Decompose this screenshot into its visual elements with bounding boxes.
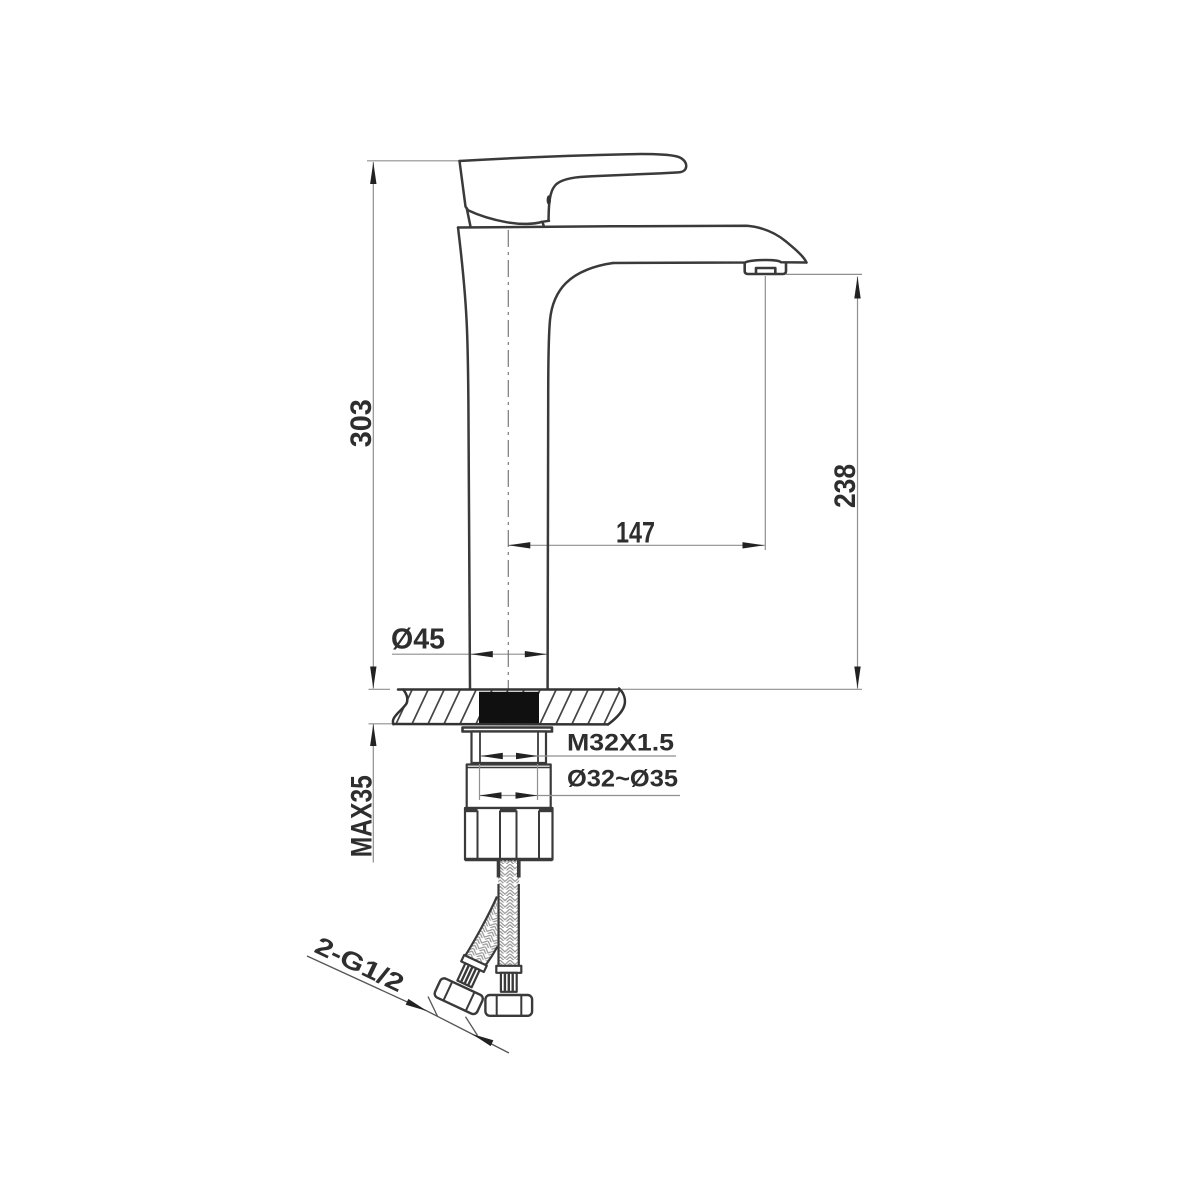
svg-text:Ø32~Ø35: Ø32~Ø35 bbox=[567, 766, 678, 793]
svg-text:238: 238 bbox=[829, 464, 862, 508]
svg-text:MAX35: MAX35 bbox=[346, 775, 379, 857]
svg-text:303: 303 bbox=[345, 399, 378, 447]
svg-text:147: 147 bbox=[616, 517, 655, 550]
svg-text:M32X1.5: M32X1.5 bbox=[567, 730, 674, 757]
svg-text:Ø45: Ø45 bbox=[391, 624, 445, 656]
